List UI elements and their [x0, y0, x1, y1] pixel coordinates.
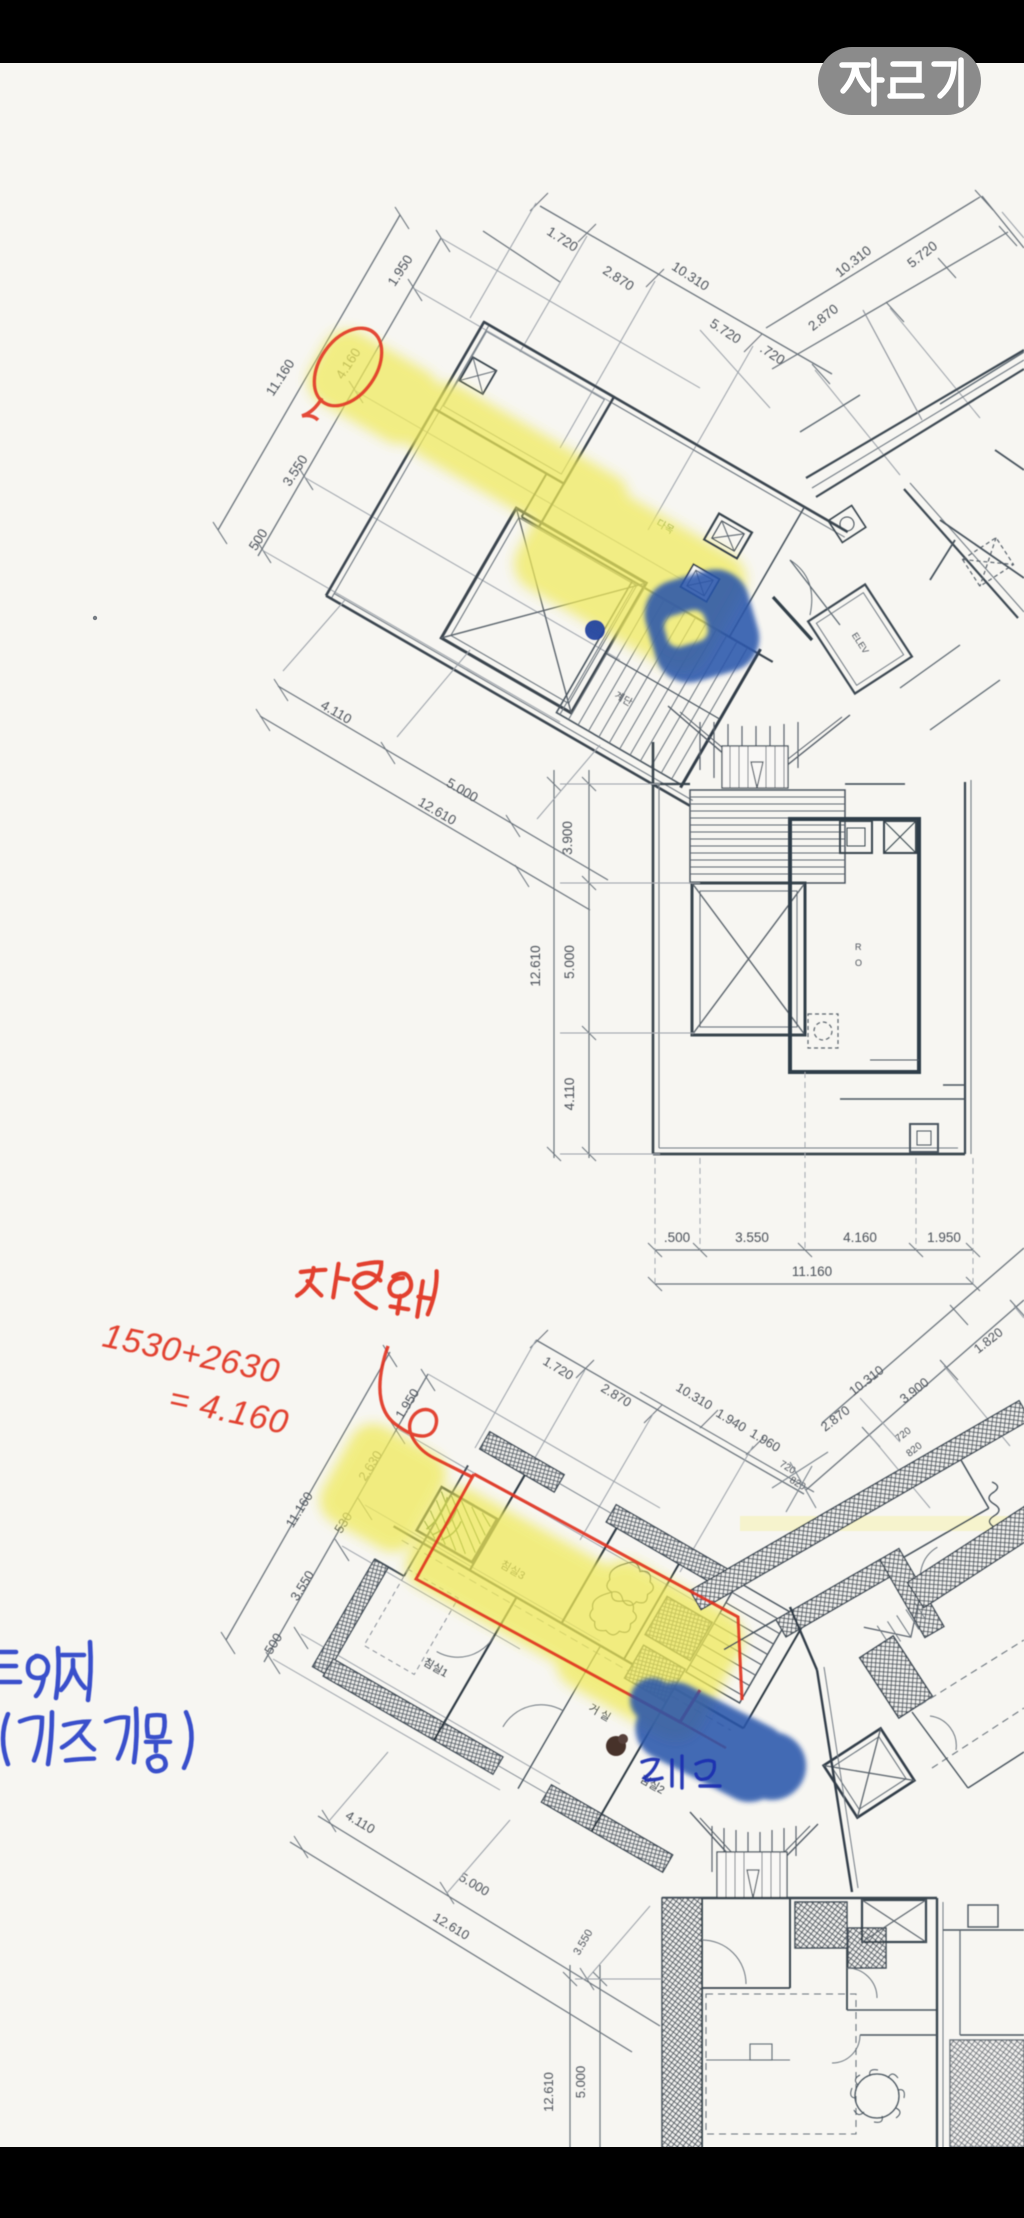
- svg-text:5.000: 5.000: [562, 945, 577, 979]
- svg-text:4.110: 4.110: [562, 1078, 577, 1111]
- svg-text:4.160: 4.160: [843, 1230, 877, 1245]
- svg-text:12.610: 12.610: [541, 2072, 556, 2112]
- svg-text:3.550: 3.550: [735, 1230, 769, 1245]
- svg-text:12.610: 12.610: [528, 945, 543, 986]
- svg-text:1.950: 1.950: [927, 1230, 961, 1245]
- svg-text:3.900: 3.900: [560, 821, 575, 855]
- svg-text:5.000: 5.000: [573, 2066, 588, 2099]
- svg-text:O: O: [855, 958, 862, 968]
- svg-text:.500: .500: [664, 1230, 690, 1245]
- svg-text:R: R: [855, 942, 862, 952]
- svg-text:11.160: 11.160: [792, 1264, 832, 1279]
